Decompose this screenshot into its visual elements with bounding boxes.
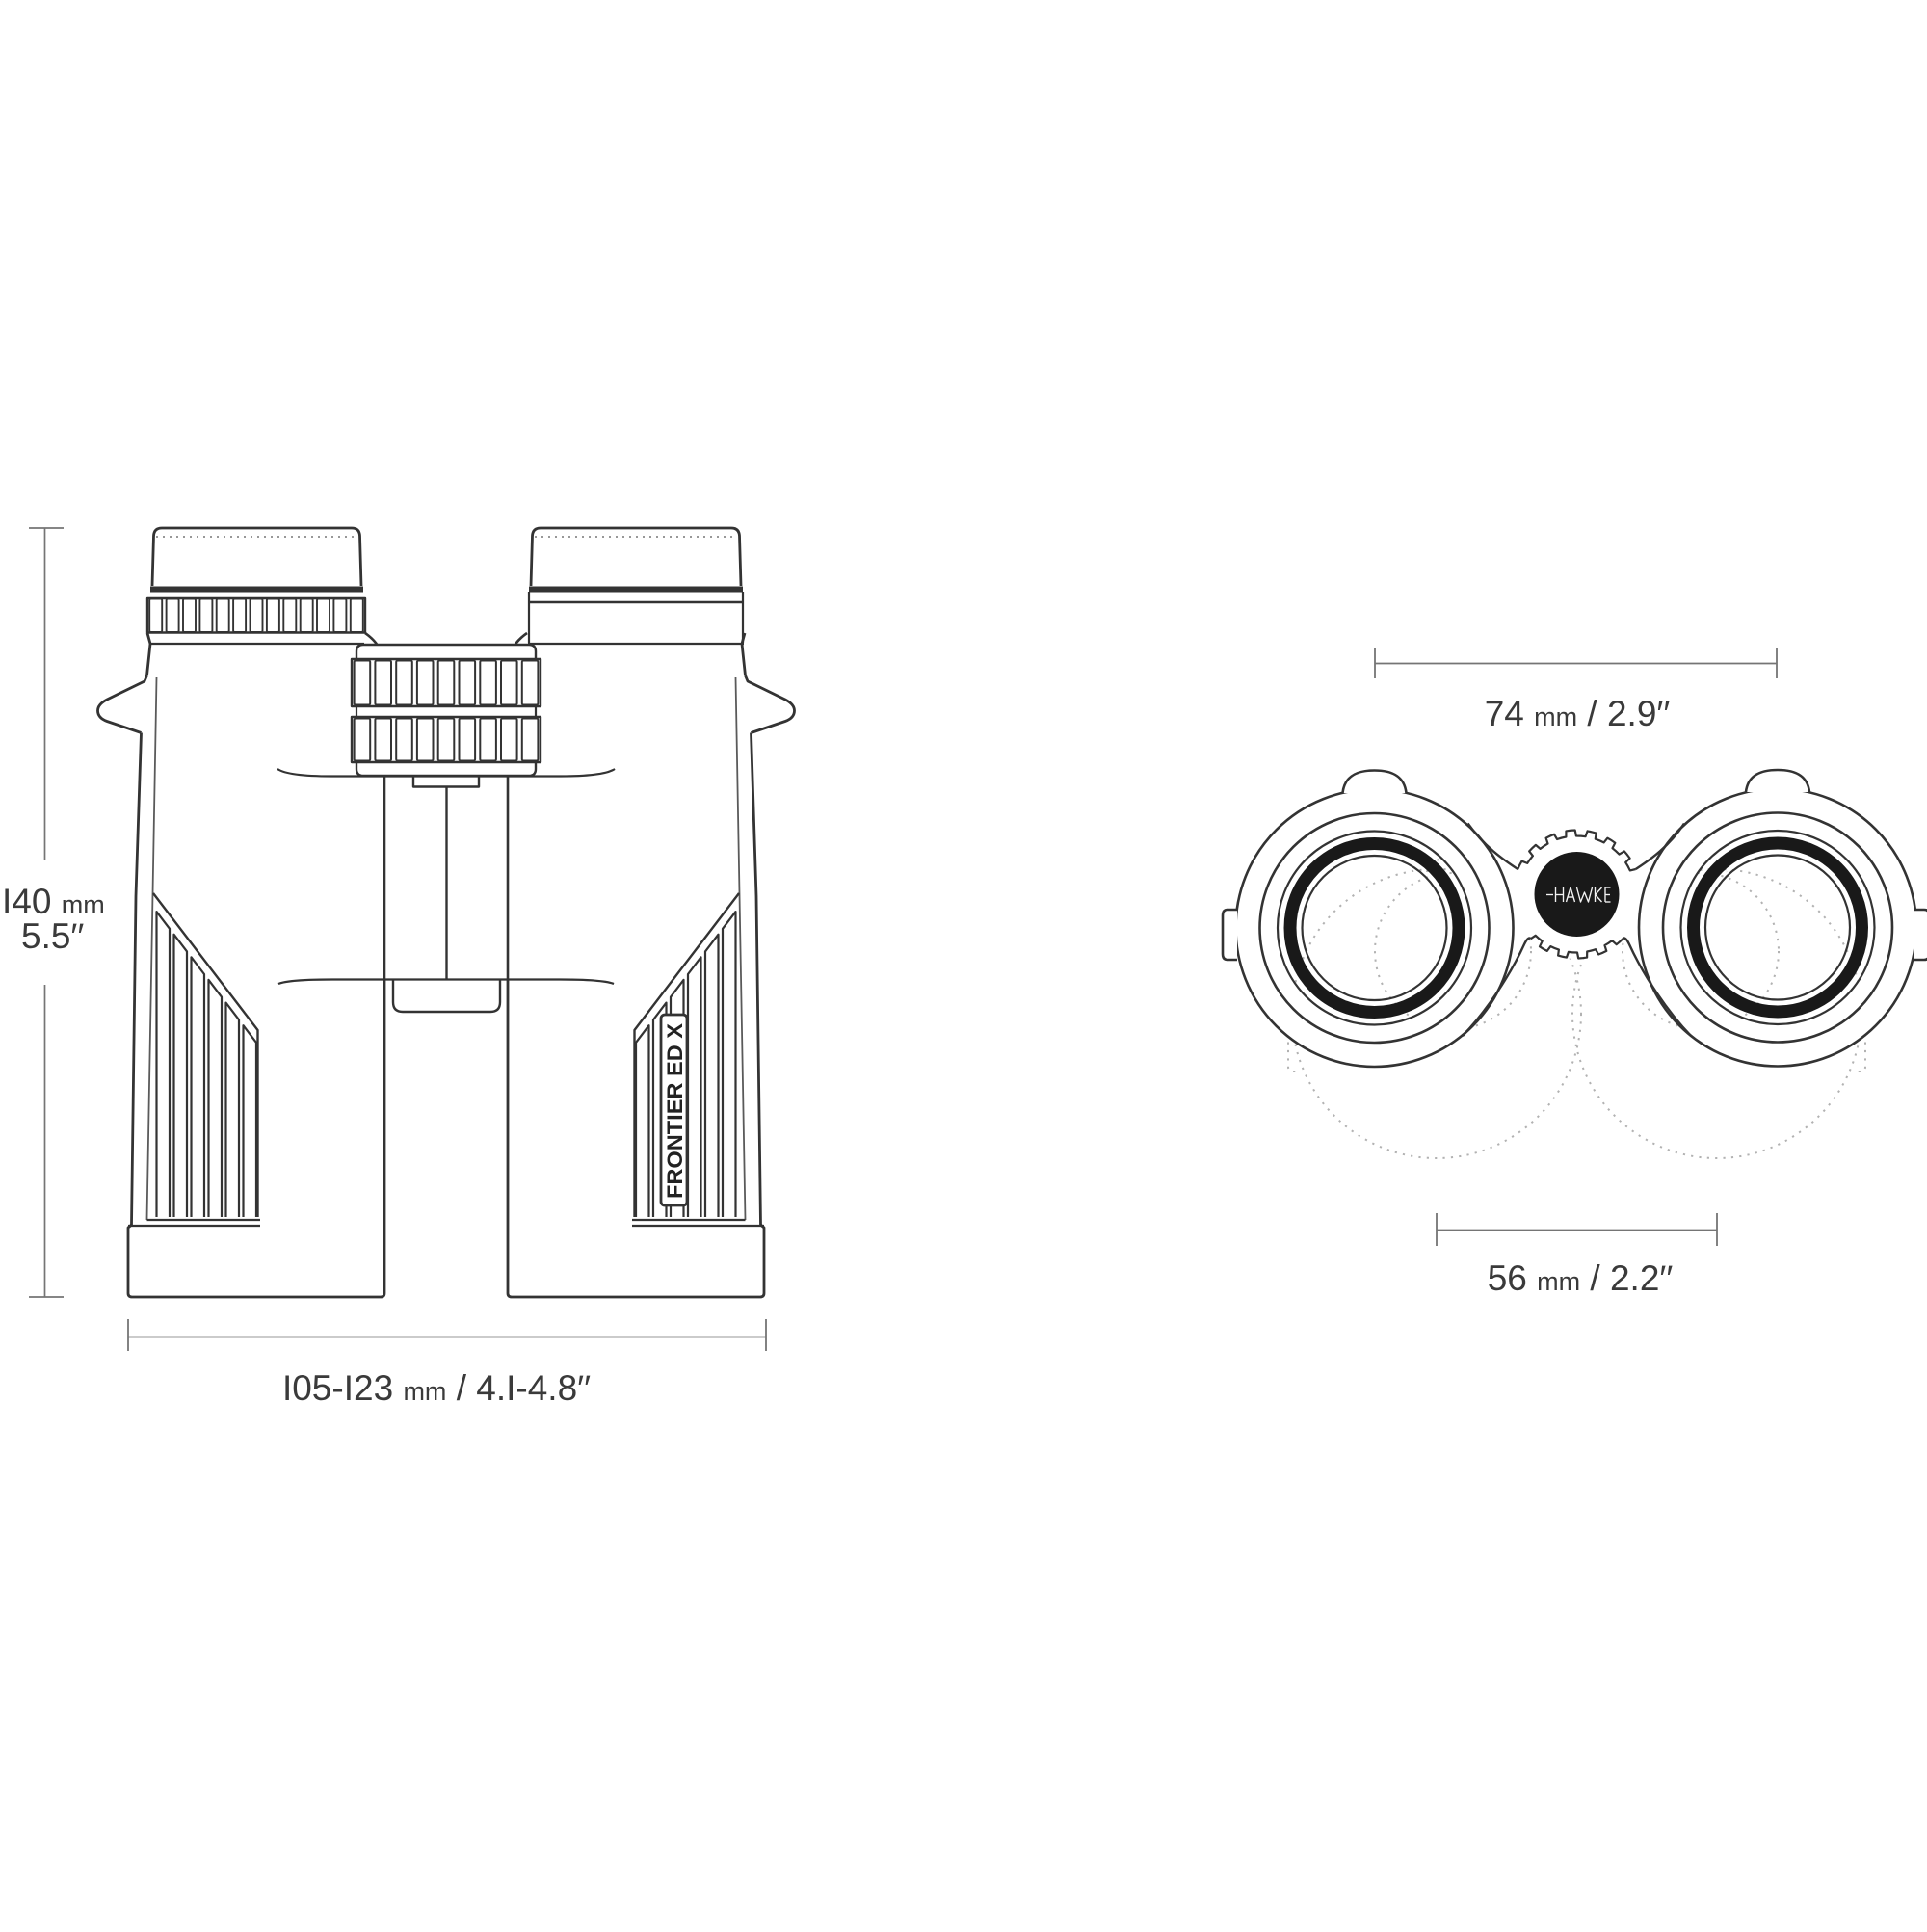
svg-text:5.5′′: 5.5′′	[21, 916, 84, 956]
svg-text:74 mm / 2.9′′: 74 mm / 2.9′′	[1485, 694, 1671, 733]
svg-text:56 mm / 2.2′′: 56 mm / 2.2′′	[1488, 1258, 1674, 1298]
svg-text:FRONTIER ED X: FRONTIER ED X	[663, 1023, 687, 1199]
